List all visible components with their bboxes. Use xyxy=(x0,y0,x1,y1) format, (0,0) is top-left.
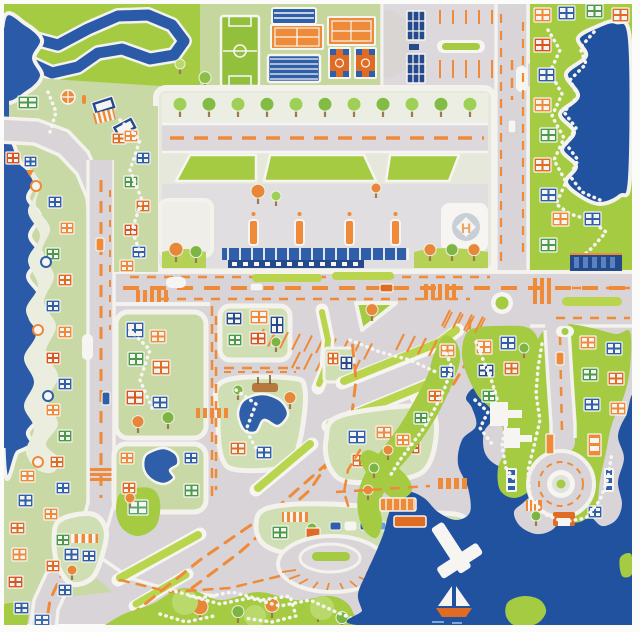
svg-text:H: H xyxy=(461,220,471,236)
